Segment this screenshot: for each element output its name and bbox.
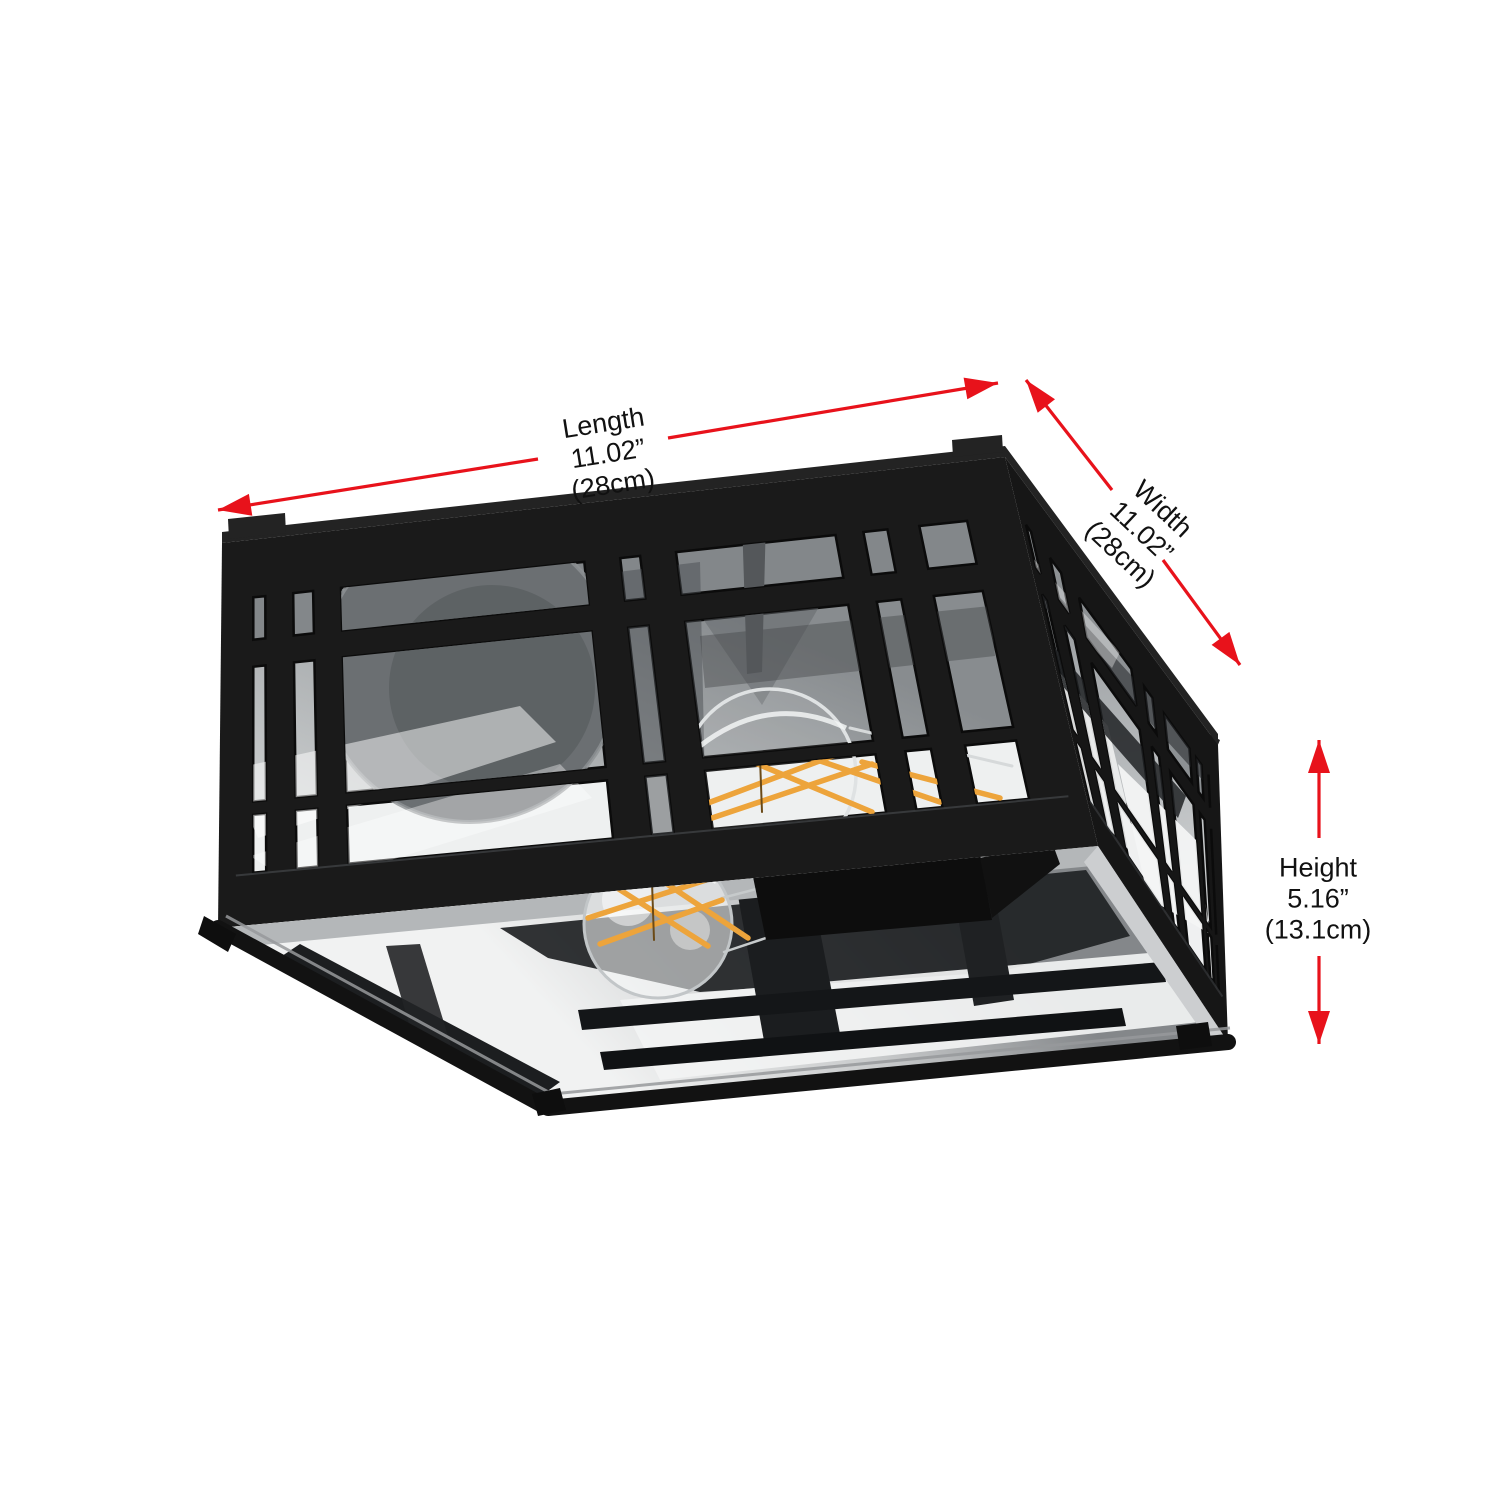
arrowhead [964,378,998,400]
height-label-line: 5.16” [1287,884,1349,914]
arrowhead [218,494,252,516]
height-label-line: Height [1279,853,1358,883]
height-label: Height5.16”(13.1cm) [1265,853,1372,945]
arrowhead [1308,740,1330,773]
front-glass-cell [965,741,1029,804]
front-glass-cell [253,596,265,640]
length-arrow-line [218,459,538,510]
front-glass-cell [293,591,314,636]
fixture-illustration: Length11.02”(28cm)Width11.02”(28cm)Heigh… [0,0,1500,1500]
arrowhead [1026,380,1055,413]
product-dimension-diagram: Length11.02”(28cm)Width11.02”(28cm)Heigh… [0,0,1500,1500]
height-annotation: Height5.16”(13.1cm) [1265,740,1372,1044]
front-glass-cell [919,521,976,569]
frame-foot [1176,1022,1212,1050]
length-arrow-line [668,383,998,438]
right-glass-cell [1209,775,1211,808]
arrowhead [1308,1011,1330,1044]
length-label: Length11.02”(28cm) [559,401,656,505]
height-label-line: (13.1cm) [1265,915,1372,945]
arrowhead [1212,632,1240,665]
